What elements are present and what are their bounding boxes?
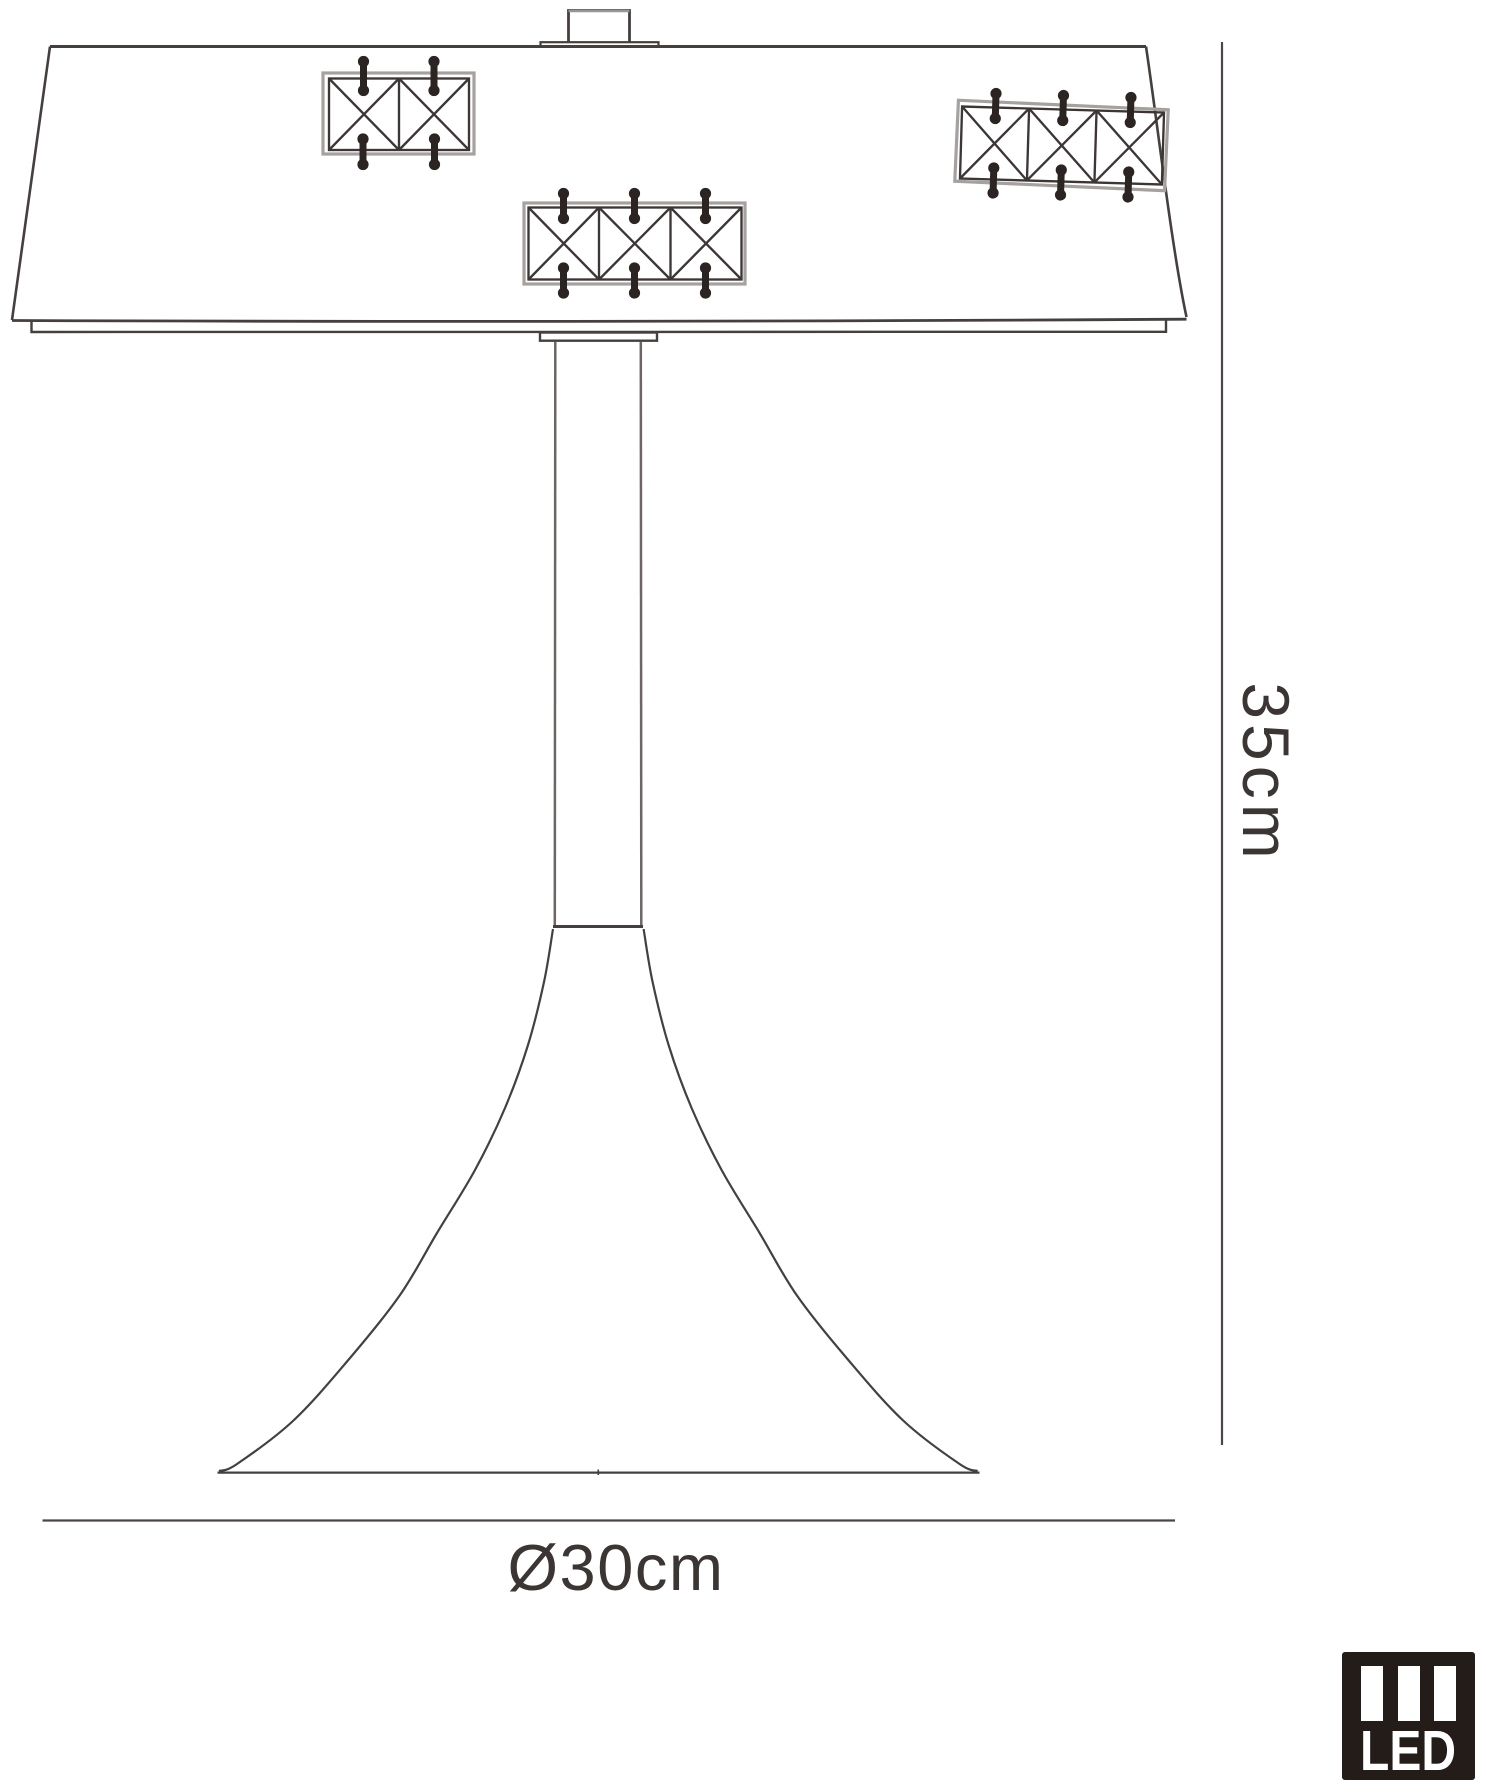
svg-text:Ø30cm: Ø30cm [507, 1531, 724, 1604]
svg-text:LED: LED [1360, 1719, 1456, 1783]
svg-text:35cm: 35cm [1229, 682, 1303, 863]
